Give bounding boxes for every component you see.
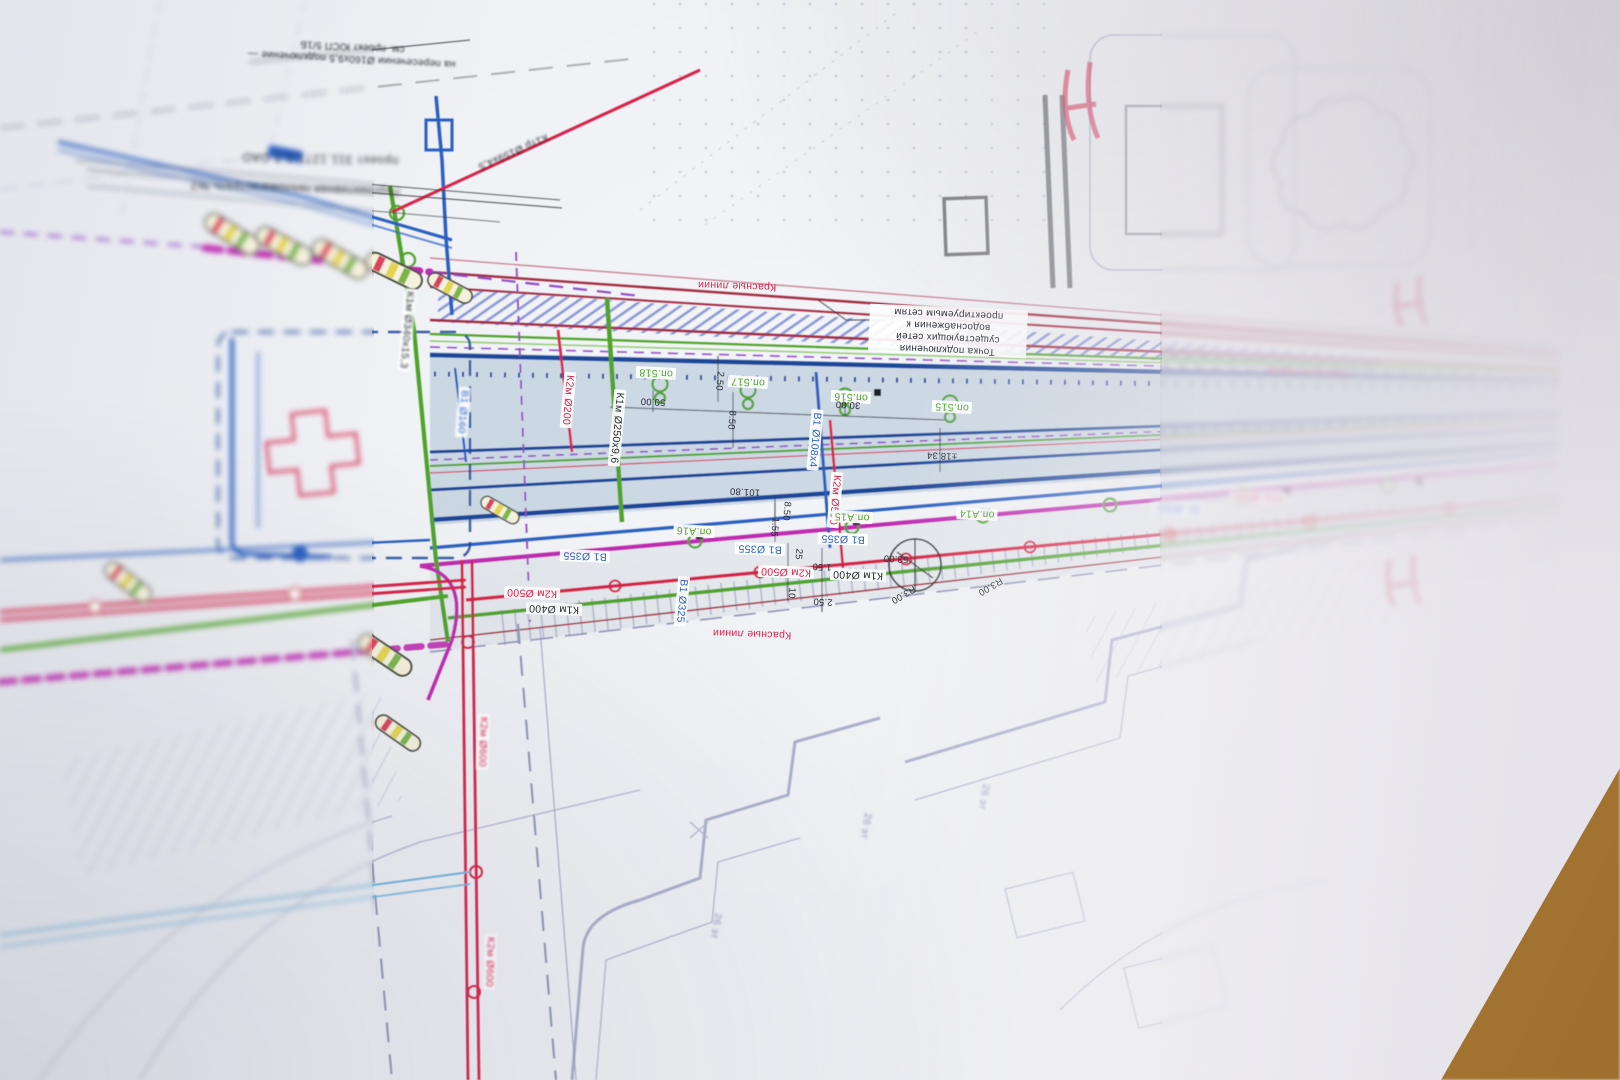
pipe-label: В1 Ø355	[560, 549, 610, 563]
pipe-label: К2м Ø500	[758, 565, 815, 579]
support-label: оп.А14	[956, 507, 998, 521]
support-label: оп.517	[728, 375, 768, 389]
dimension-label: 101.80	[730, 484, 761, 498]
pipe-label: В1 Ø355	[1153, 501, 1203, 515]
pipe-label: К2м Ø600	[483, 934, 497, 991]
dimension-label: 30.00	[835, 397, 860, 410]
dimension-label: 8.50	[779, 501, 793, 521]
dimension-label: 10	[785, 587, 798, 599]
utility-plan-photo: К2м Ø500 К1м Ø400 В1 Ø355 В1 Ø355 В1 Ø35…	[0, 0, 1620, 1080]
dimension-label: 8.50	[724, 410, 738, 430]
annotation-connection-point: Точка подключения существующих сетей вод…	[868, 304, 1028, 359]
dimension-label: 50.00	[640, 394, 665, 407]
pipe-label: К1м Ø400	[830, 568, 887, 582]
dimension-label: 1.50	[812, 560, 832, 573]
support-label: оп.518	[636, 366, 676, 380]
support-label: оп.А15	[831, 510, 873, 524]
dimension-label: ±18.34	[927, 448, 958, 462]
pipe-label: К2м Ø600	[476, 714, 490, 771]
pipe-label: В1 Ø355	[818, 532, 868, 546]
pipe-label: К1м Ø400	[526, 602, 583, 616]
dimension-label: 53.00	[883, 551, 908, 564]
pipe-label: К2м Ø500	[504, 586, 561, 600]
dimension-label: 2.50	[813, 595, 833, 608]
support-label: оп.А16	[673, 524, 715, 538]
pipe-label: В1 Ø355	[735, 542, 785, 556]
support-label: оп.515	[932, 400, 972, 414]
dimension-label: 1.55	[767, 517, 781, 537]
dimension-label: 2.50	[712, 371, 726, 391]
dimension-label: 25	[792, 548, 805, 560]
pipe-label: К2м Ø500	[1230, 490, 1287, 504]
